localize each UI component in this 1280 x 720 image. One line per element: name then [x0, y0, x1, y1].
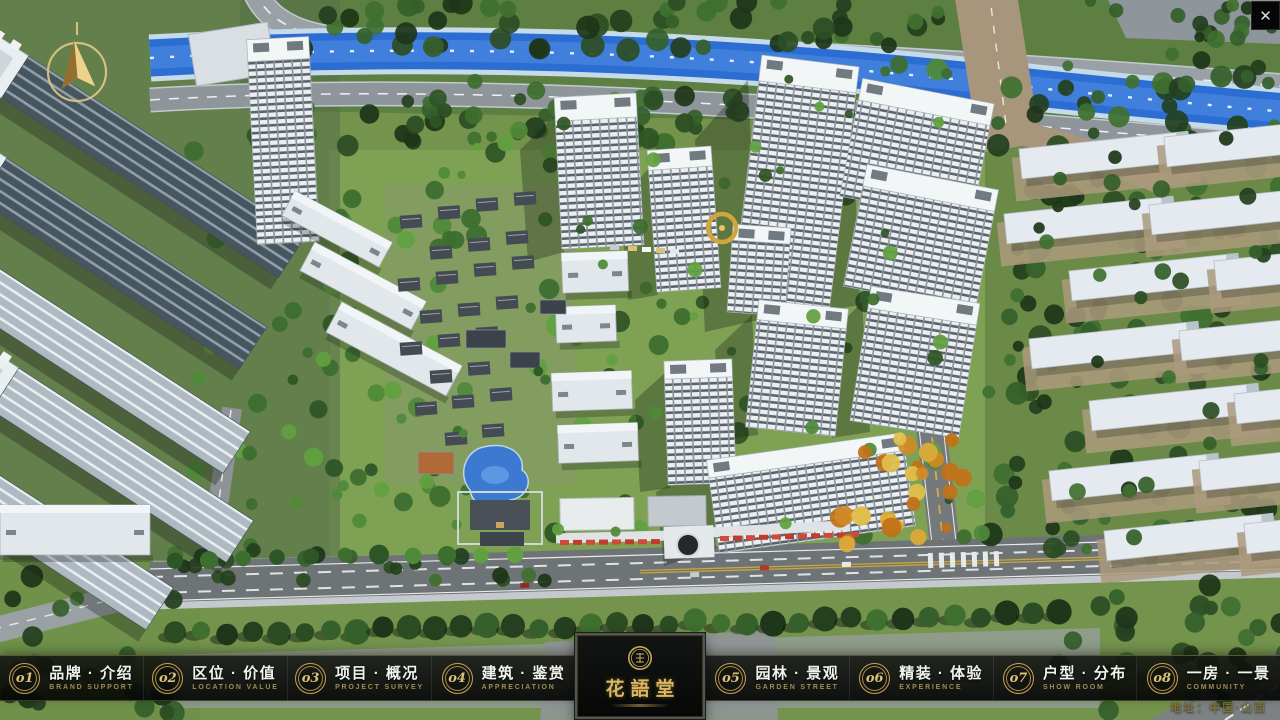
nav-label-zh: 区位 · 价值 [192, 666, 276, 681]
nav-item-room-view[interactable]: o8 一房 · 一景 COMMUNITY [1136, 656, 1280, 700]
logo-seal-icon [627, 645, 653, 671]
nav-label-en: PROJECT SURVEY [335, 684, 424, 691]
nav-number: o8 [1153, 671, 1171, 686]
nav-item-landscape[interactable]: o5 园林 · 景观 GARDEN STREET [705, 656, 849, 700]
nav-label-zh: 项目 · 概况 [335, 666, 419, 681]
nav-item-brand-intro[interactable]: o1 品牌 · 介绍 BRAND SUPPORT [0, 656, 143, 700]
nav-badge: o2 [152, 663, 183, 694]
nav-badge: o3 [295, 663, 326, 694]
nav-number: o2 [159, 671, 177, 686]
nav-item-interior[interactable]: o6 精装 · 体验 EXPERIENCE [849, 656, 993, 700]
close-icon: ✕ [1259, 7, 1272, 25]
bottom-nav: o1 品牌 · 介绍 BRAND SUPPORT o2 区位 · 价值 LOCA… [0, 655, 1280, 701]
nav-label-en: GARDEN STREET [755, 684, 838, 691]
nav-label-zh: 园林 · 景观 [755, 666, 839, 681]
nav-label-zh: 建筑 · 鉴赏 [482, 666, 566, 681]
nav-group-left: o1 品牌 · 介绍 BRAND SUPPORT o2 区位 · 价值 LOCA… [0, 656, 575, 700]
nav-item-project-overview[interactable]: o3 项目 · 概况 PROJECT SURVEY [287, 656, 431, 700]
logo-panel[interactable]: 花語堂 [575, 633, 705, 719]
logo-subtitle-line [611, 704, 669, 707]
nav-label-zh: 精装 · 体验 [899, 666, 983, 681]
nav-label-en: APPRECIATION [482, 684, 556, 691]
nav-number: o1 [16, 671, 34, 686]
nav-number: o6 [866, 671, 884, 686]
masterplan-render-viewport[interactable] [0, 0, 1280, 720]
nav-badge: o8 [1147, 663, 1178, 694]
nav-number: o5 [722, 671, 740, 686]
nav-number: o3 [302, 671, 320, 686]
nav-badge: o7 [1003, 663, 1034, 694]
nav-label-zh: 户型 · 分布 [1043, 666, 1127, 681]
nav-label-zh: 品牌 · 介绍 [49, 666, 133, 681]
nav-label-en: SHOW ROOM [1043, 684, 1105, 691]
nav-item-architecture[interactable]: o4 建筑 · 鉴赏 APPRECIATION [431, 656, 575, 700]
nav-label-en: COMMUNITY [1187, 684, 1246, 691]
nav-item-floorplan[interactable]: o7 户型 · 分布 SHOW ROOM [993, 656, 1137, 700]
compass-icon [34, 20, 118, 116]
nav-number: o4 [448, 671, 466, 686]
nav-number: o7 [1010, 671, 1028, 686]
address-label: 地址：中国·山西 [1170, 699, 1267, 715]
nav-badge: o5 [715, 663, 746, 694]
close-button[interactable]: ✕ [1251, 1, 1280, 30]
logo-title: 花語堂 [599, 674, 680, 701]
nav-label-zh: 一房 · 一景 [1187, 666, 1271, 681]
nav-badge: o1 [9, 663, 40, 694]
nav-badge: o6 [859, 663, 890, 694]
nav-group-right: o5 园林 · 景观 GARDEN STREET o6 精装 · 体验 EXPE… [705, 656, 1280, 700]
nav-badge: o4 [442, 663, 473, 694]
nav-item-location-value[interactable]: o2 区位 · 价值 LOCATION VALUE [143, 656, 287, 700]
nav-label-en: EXPERIENCE [899, 684, 962, 691]
nav-label-en: LOCATION VALUE [192, 684, 278, 691]
nav-label-en: BRAND SUPPORT [49, 684, 133, 691]
app-window: ✕ o1 品牌 · 介绍 BRAND SUPPORT o2 区位 · 价值 LO… [0, 0, 1280, 720]
